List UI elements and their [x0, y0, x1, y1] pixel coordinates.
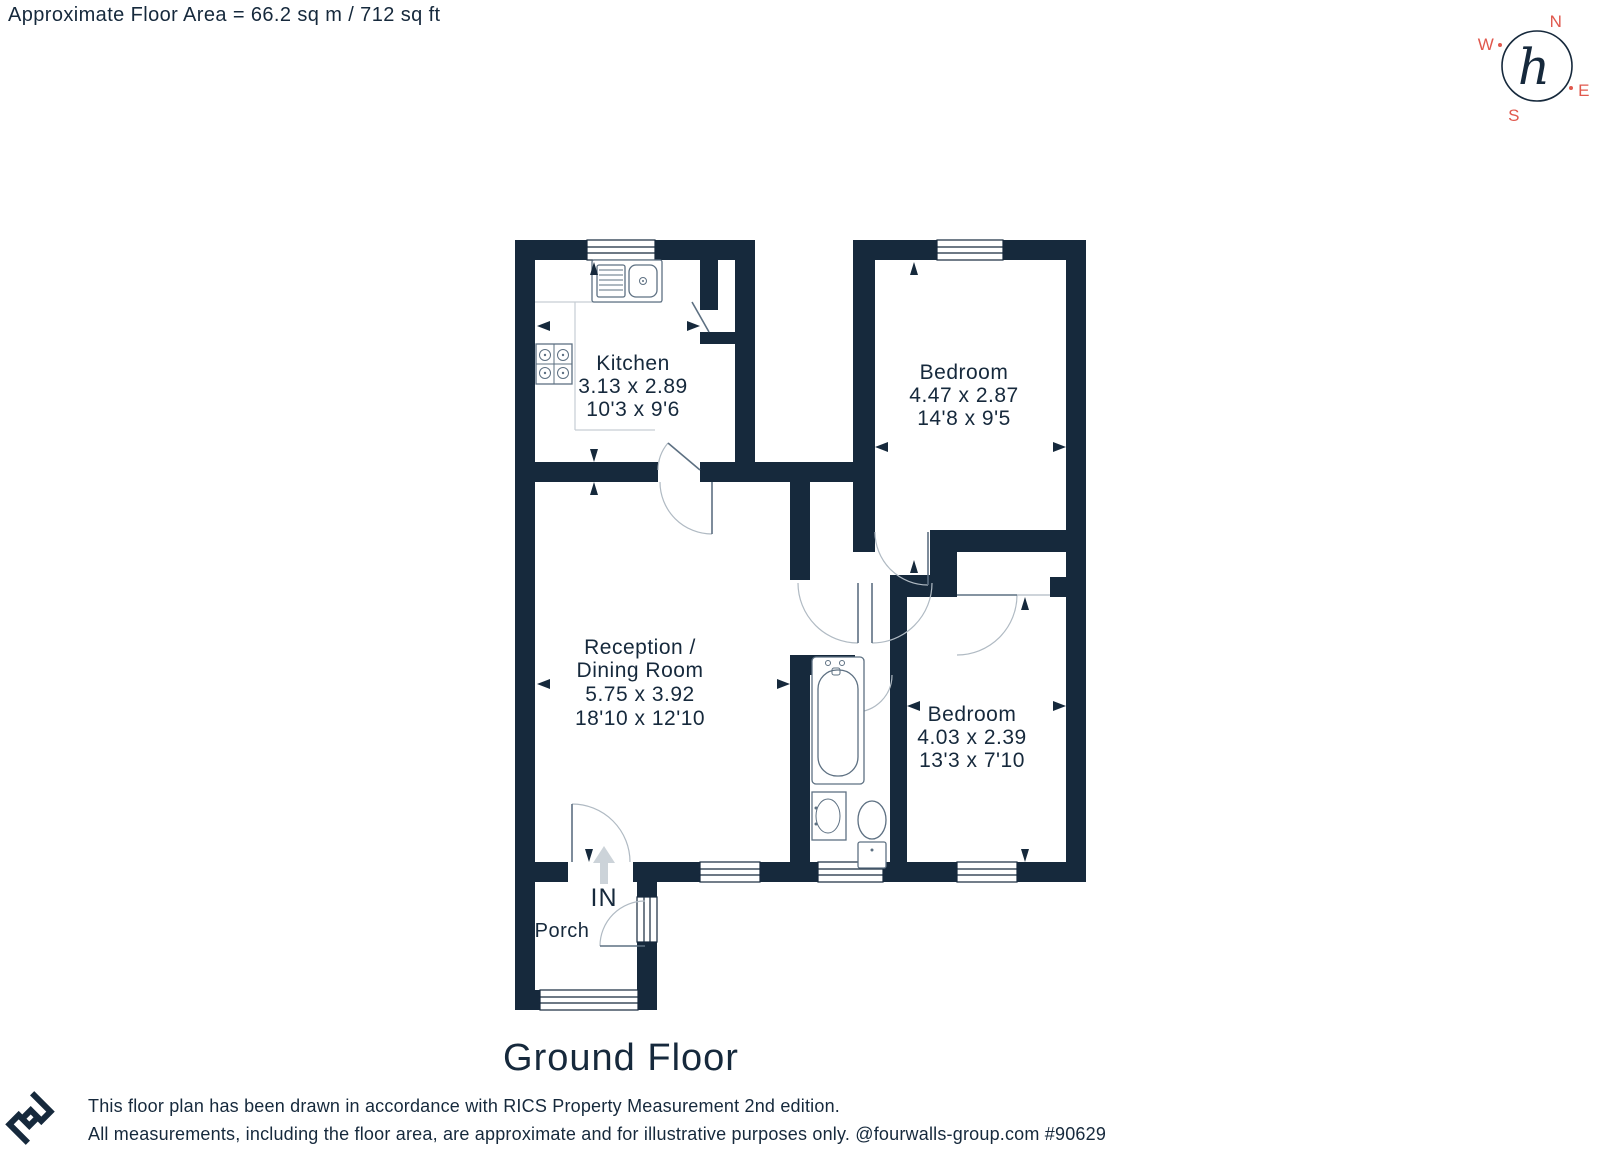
bedroom1-metric: 4.47 x 2.87 [909, 384, 1018, 407]
footer: This floor plan has been drawn in accord… [5, 1093, 1106, 1144]
bedroom1-label: Bedroom [920, 361, 1009, 384]
porch-label: Porch [535, 920, 590, 942]
footer-line-2: All measurements, including the floor ar… [88, 1124, 1106, 1144]
floor-area-note: Approximate Floor Area = 66.2 sq m / 712… [8, 4, 441, 26]
kitchen-imperial: 10'3 x 9'6 [586, 398, 680, 421]
bedroom2-label: Bedroom [928, 703, 1017, 726]
bedroom2-door [957, 595, 1050, 655]
bedroom1-imperial: 14'8 x 9'5 [917, 407, 1011, 430]
bathroom-fixtures [812, 657, 886, 868]
kitchen-passage-door [660, 482, 712, 534]
reception-label-1: Reception / [584, 636, 696, 659]
compass-east-dot [1569, 86, 1573, 90]
window [937, 240, 1003, 260]
entrance-label: IN [591, 884, 618, 912]
kitchen-metric: 3.13 x 2.89 [578, 375, 687, 398]
kitchen-label: Kitchen [596, 352, 670, 375]
compass-east-label: E [1578, 81, 1590, 100]
window [637, 897, 657, 942]
window [700, 862, 760, 882]
floor-plan-page: Approximate Floor Area = 66.2 sq m / 712… [0, 0, 1600, 1157]
compass-west-dot [1498, 43, 1502, 47]
window [957, 862, 1017, 882]
compass-west-label: W [1478, 35, 1495, 54]
window [587, 240, 655, 260]
reception-metric: 5.75 x 3.92 [585, 683, 694, 706]
toilet-icon [858, 801, 886, 868]
floor-plan: Kitchen 3.13 x 2.89 10'3 x 9'6 Bedroom 4… [515, 240, 1086, 1010]
floor-plan-canvas: Approximate Floor Area = 66.2 sq m / 712… [0, 0, 1600, 1157]
kitchen-hob-icon [536, 344, 572, 384]
reception-label-2: Dining Room [577, 659, 704, 682]
footer-line-1: This floor plan has been drawn in accord… [88, 1096, 840, 1116]
kitchen-door [658, 443, 700, 470]
fourwalls-logo [5, 1093, 54, 1142]
window [540, 990, 638, 1010]
bedroom2-imperial: 13'3 x 7'10 [919, 749, 1025, 772]
bedroom2-metric: 4.03 x 2.39 [917, 726, 1026, 749]
kitchen-sink-icon [592, 260, 662, 302]
reception-imperial: 18'10 x 12'10 [575, 707, 705, 730]
page-title: Ground Floor [503, 1037, 739, 1079]
compass-monogram: h [1518, 38, 1550, 96]
compass-south-label: S [1508, 106, 1520, 125]
bathtub-icon [812, 657, 864, 784]
compass-north-label: N [1550, 12, 1563, 31]
compass: h N W E S [1478, 12, 1590, 125]
wash-basin-icon [812, 792, 846, 840]
entrance-arrow-icon [593, 846, 615, 884]
